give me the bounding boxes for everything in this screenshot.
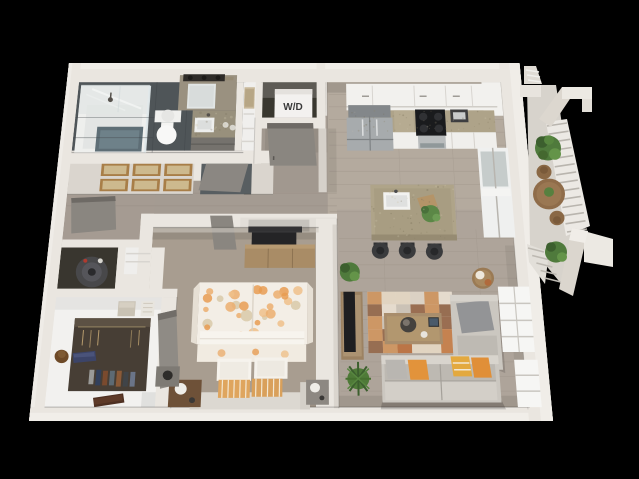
svg-text:W/D: W/D <box>283 102 302 113</box>
